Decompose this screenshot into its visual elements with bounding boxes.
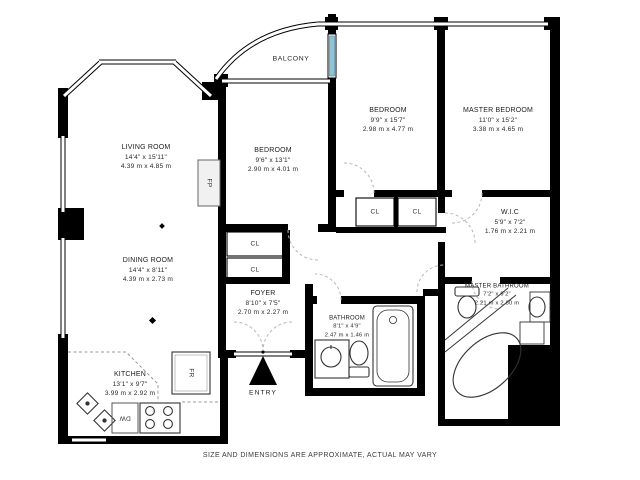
label-bedroom-center: BEDROOM 9'6" x 13'1" 2.90 m x 4.01 m <box>248 146 298 174</box>
disclaimer-text: SIZE AND DIMENSIONS ARE APPROXIMATE, ACT… <box>20 452 620 459</box>
label-entry: ENTRY <box>249 390 277 397</box>
label-closet-2: CL <box>251 267 260 274</box>
master-shower <box>520 322 544 344</box>
label-balcony: BALCONY <box>273 56 310 63</box>
bathroom-vanity <box>315 340 349 378</box>
label-fireplace: FP <box>206 179 213 188</box>
bathroom-toilet <box>349 341 369 377</box>
label-fridge: FR <box>188 368 195 377</box>
label-closet-1: CL <box>251 241 260 248</box>
stove <box>140 403 180 433</box>
label-kitchen: KITCHEN 13'1" x 9'7" 3.99 m x 2.92 m <box>105 370 155 398</box>
entry-arrow <box>249 356 277 385</box>
floor-plan: BALCONY LIVING ROOM 14'4" x 15'11" 4.39 … <box>0 0 640 480</box>
label-bedroom-second: BEDROOM 9'9" x 15'7" 2.98 m x 4.77 m <box>363 106 413 134</box>
label-wic: W.I.C 5'9" x 7'2" 1.76 m x 2.21 m <box>485 208 535 236</box>
label-dining-room: DINING ROOM 14'4" x 8'11" 4.39 m x 2.73 … <box>123 256 173 284</box>
master-sink <box>529 292 550 322</box>
label-closet-3: CL <box>371 209 380 216</box>
label-master-bedroom: MASTER BEDROOM 11'0" x 15'2" 3.38 m x 4.… <box>463 106 533 134</box>
label-closet-4: CL <box>413 209 422 216</box>
kitchen-sink <box>77 393 115 431</box>
glass-slider-door <box>328 34 336 78</box>
label-master-bathroom: MASTER BATHROOM 7'2" x 9'2" 2.21 m x 2.8… <box>465 283 529 308</box>
floor-plan-drawing <box>0 0 640 480</box>
label-dishwasher: DW <box>119 415 130 422</box>
bathtub <box>373 306 413 386</box>
label-living-room: LIVING ROOM 14'4" x 15'11" 4.39 m x 4.85… <box>121 143 171 171</box>
label-foyer: FOYER 8'10" x 7'5" 2.70 m x 2.27 m <box>238 289 288 317</box>
label-bathroom: BATHROOM 8'1" x 4'9" 2.47 m x 1.46 m <box>325 315 370 340</box>
